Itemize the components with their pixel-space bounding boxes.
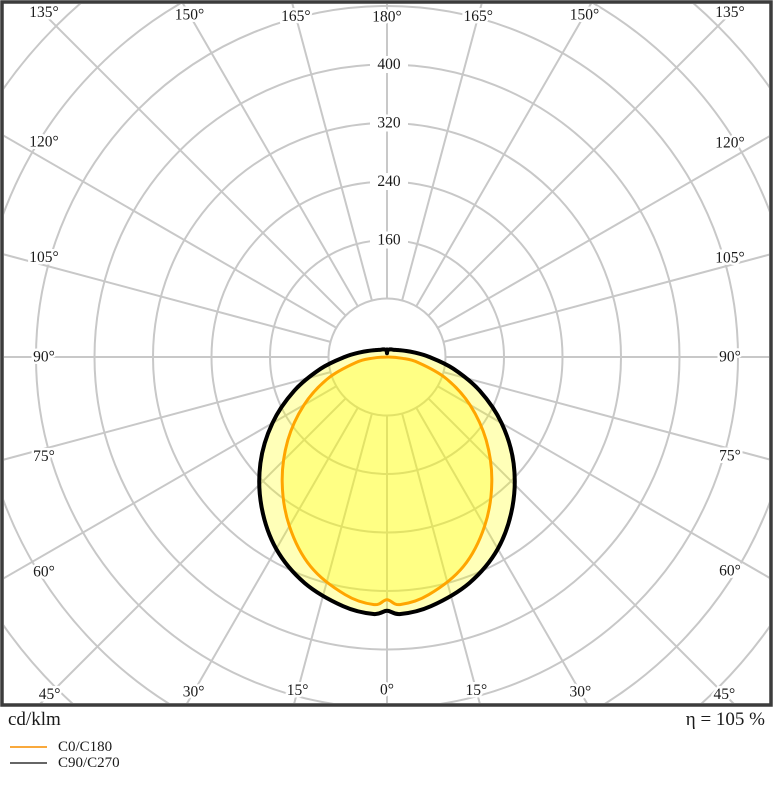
polar-chart: 1602403204000°15°15°30°30°45°45°60°60°75… bbox=[0, 0, 774, 800]
angle-tick-label: 135° bbox=[29, 4, 58, 21]
angle-tick-label: 15° bbox=[287, 682, 309, 699]
angle-tick-label: 15° bbox=[466, 682, 488, 699]
polar-chart-svg: 1602403204000°15°15°30°30°45°45°60°60°75… bbox=[0, 0, 774, 800]
angle-tick-label: 150° bbox=[175, 7, 204, 24]
angle-tick-label: 30° bbox=[570, 684, 592, 701]
legend-item: C0/C180 bbox=[10, 739, 120, 755]
efficiency-label: η = 105 % bbox=[686, 709, 765, 731]
angle-tick-label: 120° bbox=[715, 134, 744, 151]
angle-tick-label: 60° bbox=[719, 563, 741, 580]
legend-line-c90-c270-icon bbox=[10, 762, 47, 764]
angle-tick-label: 0° bbox=[380, 682, 394, 699]
angle-tick-label: 45° bbox=[714, 686, 736, 703]
angle-tick-label: 135° bbox=[715, 4, 744, 21]
radial-tick-label: 400 bbox=[377, 56, 401, 73]
radial-tick-label: 320 bbox=[377, 115, 401, 132]
radial-tick-label: 240 bbox=[377, 173, 401, 190]
angle-tick-label: 90° bbox=[719, 349, 741, 366]
angle-tick-label: 165° bbox=[281, 8, 310, 25]
angle-tick-label: 165° bbox=[463, 8, 492, 25]
angle-tick-label: 90° bbox=[33, 349, 55, 366]
legend-label: C90/C270 bbox=[58, 755, 120, 771]
angle-tick-label: 75° bbox=[719, 448, 741, 465]
angle-tick-label: 105° bbox=[29, 249, 58, 266]
unit-label: cd/klm bbox=[8, 709, 61, 731]
angle-tick-label: 150° bbox=[570, 7, 599, 24]
angle-tick-label: 75° bbox=[33, 448, 55, 465]
angle-tick-label: 30° bbox=[183, 684, 205, 701]
legend-line-c0-c180-icon bbox=[10, 746, 47, 748]
angle-tick-label: 60° bbox=[33, 563, 55, 580]
legend-label: C0/C180 bbox=[58, 739, 112, 755]
radial-tick-label: 160 bbox=[377, 232, 401, 249]
legend: C0/C180 C90/C270 bbox=[10, 739, 120, 771]
legend-item: C90/C270 bbox=[10, 755, 120, 771]
angle-tick-label: 105° bbox=[715, 250, 744, 267]
angle-tick-label: 45° bbox=[39, 686, 61, 703]
angle-tick-label: 120° bbox=[29, 134, 58, 151]
photometric-polar-diagram: 1602403204000°15°15°30°30°45°45°60°60°75… bbox=[0, 0, 774, 800]
angle-tick-label: 180° bbox=[372, 9, 401, 26]
